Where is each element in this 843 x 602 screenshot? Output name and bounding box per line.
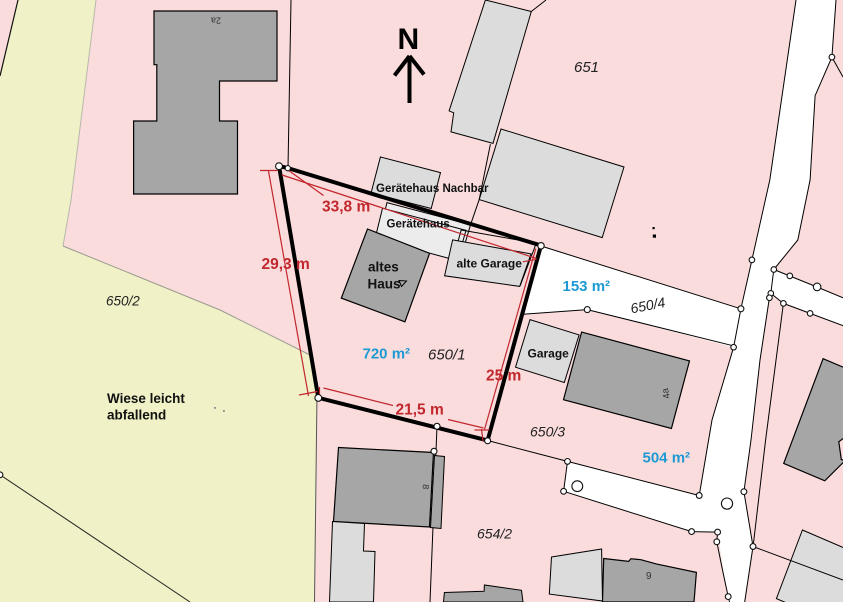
svg-text:650/2: 650/2 [106, 294, 140, 309]
svg-text:Gerätehaus: Gerätehaus [387, 219, 450, 231]
svg-text:153 m²: 153 m² [563, 278, 611, 295]
svg-text:650/1: 650/1 [428, 347, 466, 364]
svg-text:720 m²: 720 m² [363, 346, 411, 363]
svg-text:8: 8 [421, 484, 431, 490]
svg-text:654/2: 654/2 [477, 526, 512, 542]
svg-text:altes: altes [368, 260, 399, 275]
svg-text:Wiese leicht: Wiese leicht [107, 391, 185, 406]
svg-text:29,3 m: 29,3 m [262, 256, 310, 273]
svg-text:9: 9 [646, 571, 652, 582]
svg-text:25 m: 25 m [486, 368, 521, 385]
svg-text:N: N [398, 23, 420, 56]
svg-text:21,5 m: 21,5 m [396, 402, 444, 419]
svg-text:alte Garage: alte Garage [457, 257, 523, 271]
svg-text:651: 651 [574, 59, 599, 76]
svg-text:abfallend: abfallend [107, 408, 166, 423]
svg-text:Gerätehaus Nachbar: Gerätehaus Nachbar [376, 183, 489, 195]
svg-text:650/3: 650/3 [530, 424, 565, 440]
svg-text:2a: 2a [211, 16, 221, 26]
svg-text:Garage: Garage [528, 347, 570, 361]
svg-text:504 m²: 504 m² [643, 450, 691, 467]
svg-text:Haus: Haus [368, 277, 401, 292]
svg-text:33,8 m: 33,8 m [322, 199, 370, 216]
